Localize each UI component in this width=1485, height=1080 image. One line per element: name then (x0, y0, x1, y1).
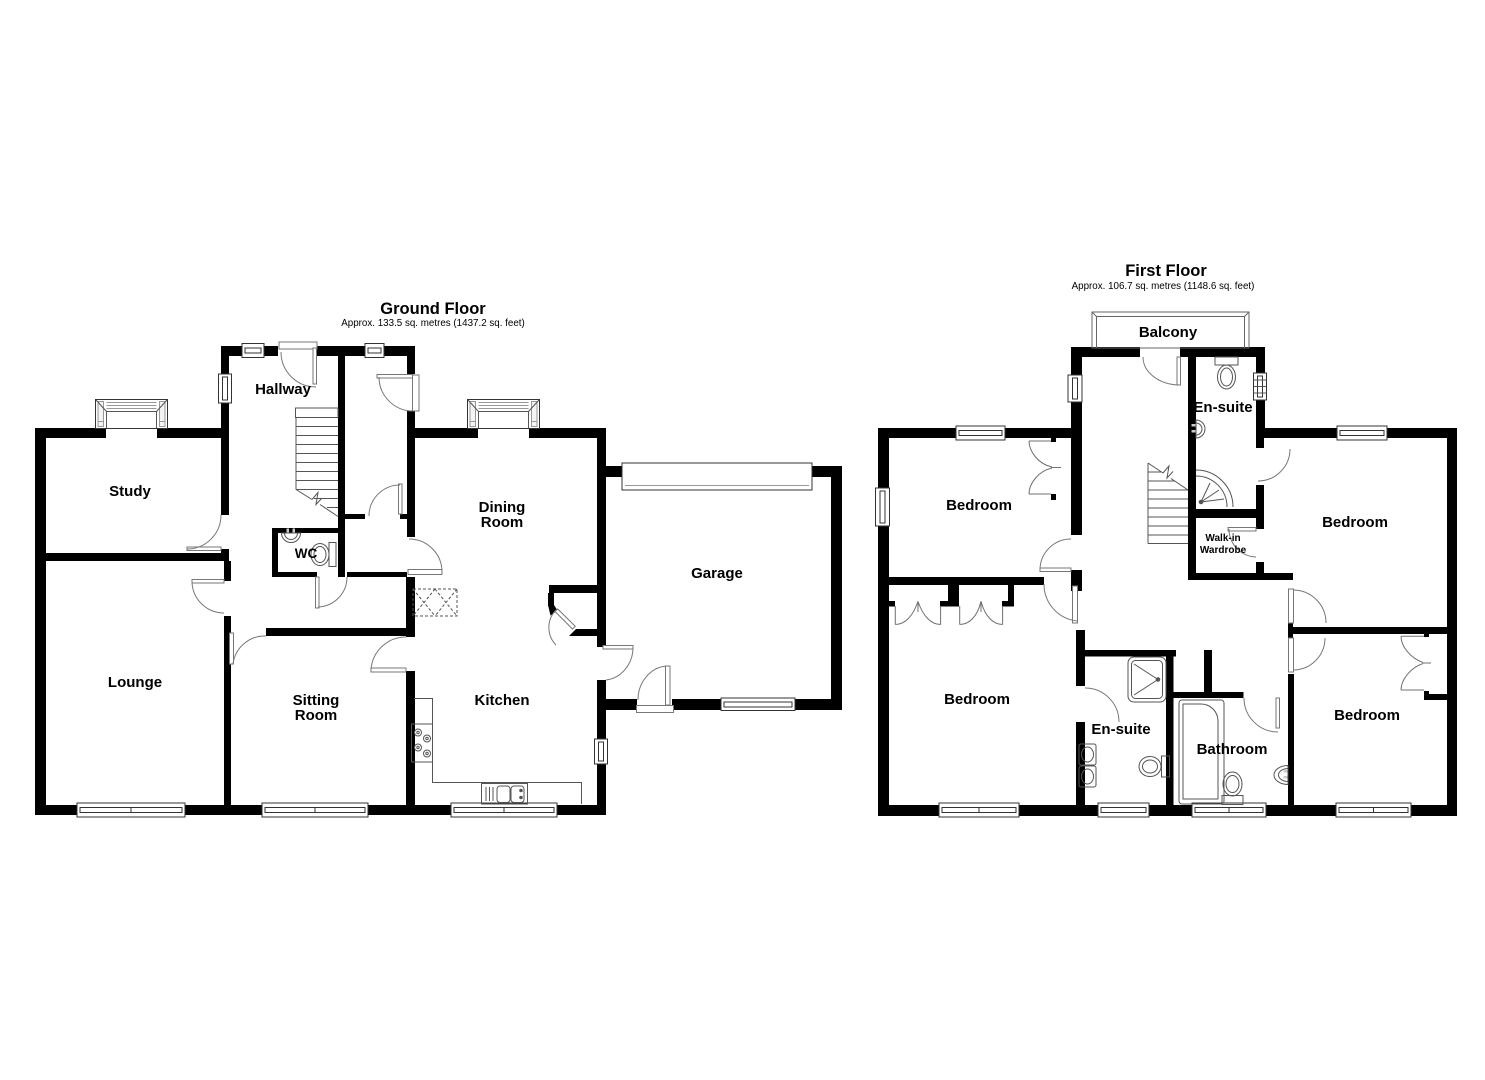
svg-text:Walk-in: Walk-in (1205, 533, 1240, 544)
svg-text:Room: Room (295, 707, 338, 724)
svg-text:Bedroom: Bedroom (944, 691, 1010, 708)
svg-text:WC: WC (295, 546, 318, 561)
svg-text:Room: Room (481, 514, 524, 531)
svg-text:Lounge: Lounge (108, 674, 162, 691)
svg-text:En-suite: En-suite (1091, 721, 1150, 738)
svg-text:Bedroom: Bedroom (1322, 514, 1388, 531)
svg-text:Ground Floor: Ground Floor (380, 300, 486, 318)
svg-text:Balcony: Balcony (1139, 324, 1198, 341)
svg-text:Bathroom: Bathroom (1197, 741, 1268, 758)
svg-text:Kitchen: Kitchen (474, 692, 529, 709)
svg-text:Approx. 106.7 sq. metres (1148: Approx. 106.7 sq. metres (1148.6 sq. fee… (1072, 281, 1255, 292)
svg-text:Garage: Garage (691, 565, 743, 582)
svg-text:Wardrobe: Wardrobe (1200, 545, 1247, 556)
svg-text:Approx. 133.5 sq. metres (1437: Approx. 133.5 sq. metres (1437.2 sq. fee… (341, 318, 525, 329)
svg-text:Bedroom: Bedroom (1334, 707, 1400, 724)
svg-text:First Floor: First Floor (1125, 262, 1207, 280)
svg-text:Hallway: Hallway (255, 381, 312, 398)
svg-text:En-suite: En-suite (1193, 399, 1252, 416)
svg-text:Study: Study (109, 483, 151, 500)
svg-text:Bedroom: Bedroom (946, 497, 1012, 514)
